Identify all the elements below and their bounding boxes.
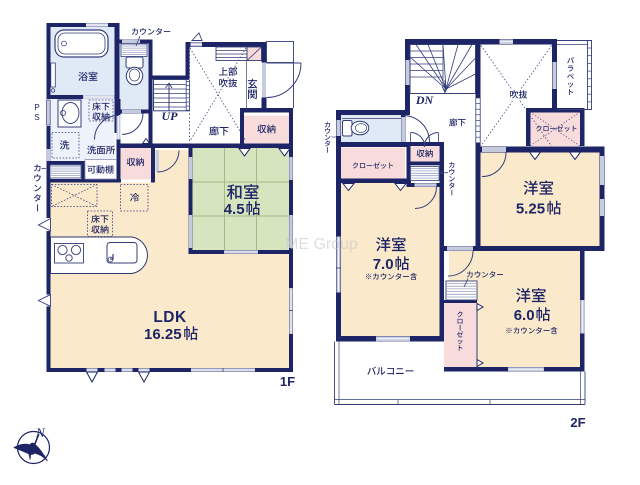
- svg-text:N: N: [35, 425, 46, 440]
- svg-text:S: S: [34, 113, 39, 122]
- svg-text:UP: UP: [162, 109, 179, 123]
- svg-text:4.5: 4.5: [224, 201, 245, 218]
- svg-text:LDK: LDK: [153, 309, 187, 326]
- svg-text:P: P: [34, 103, 39, 112]
- svg-text:7.0: 7.0: [373, 256, 394, 273]
- svg-text:1F: 1F: [280, 374, 295, 389]
- svg-text:DN: DN: [415, 93, 435, 107]
- svg-text:2F: 2F: [570, 415, 585, 430]
- svg-text:5.25: 5.25: [516, 200, 545, 217]
- svg-text:ME Group: ME Group: [285, 236, 358, 253]
- svg-text:6.0: 6.0: [514, 307, 535, 324]
- svg-text:16.25: 16.25: [144, 326, 182, 343]
